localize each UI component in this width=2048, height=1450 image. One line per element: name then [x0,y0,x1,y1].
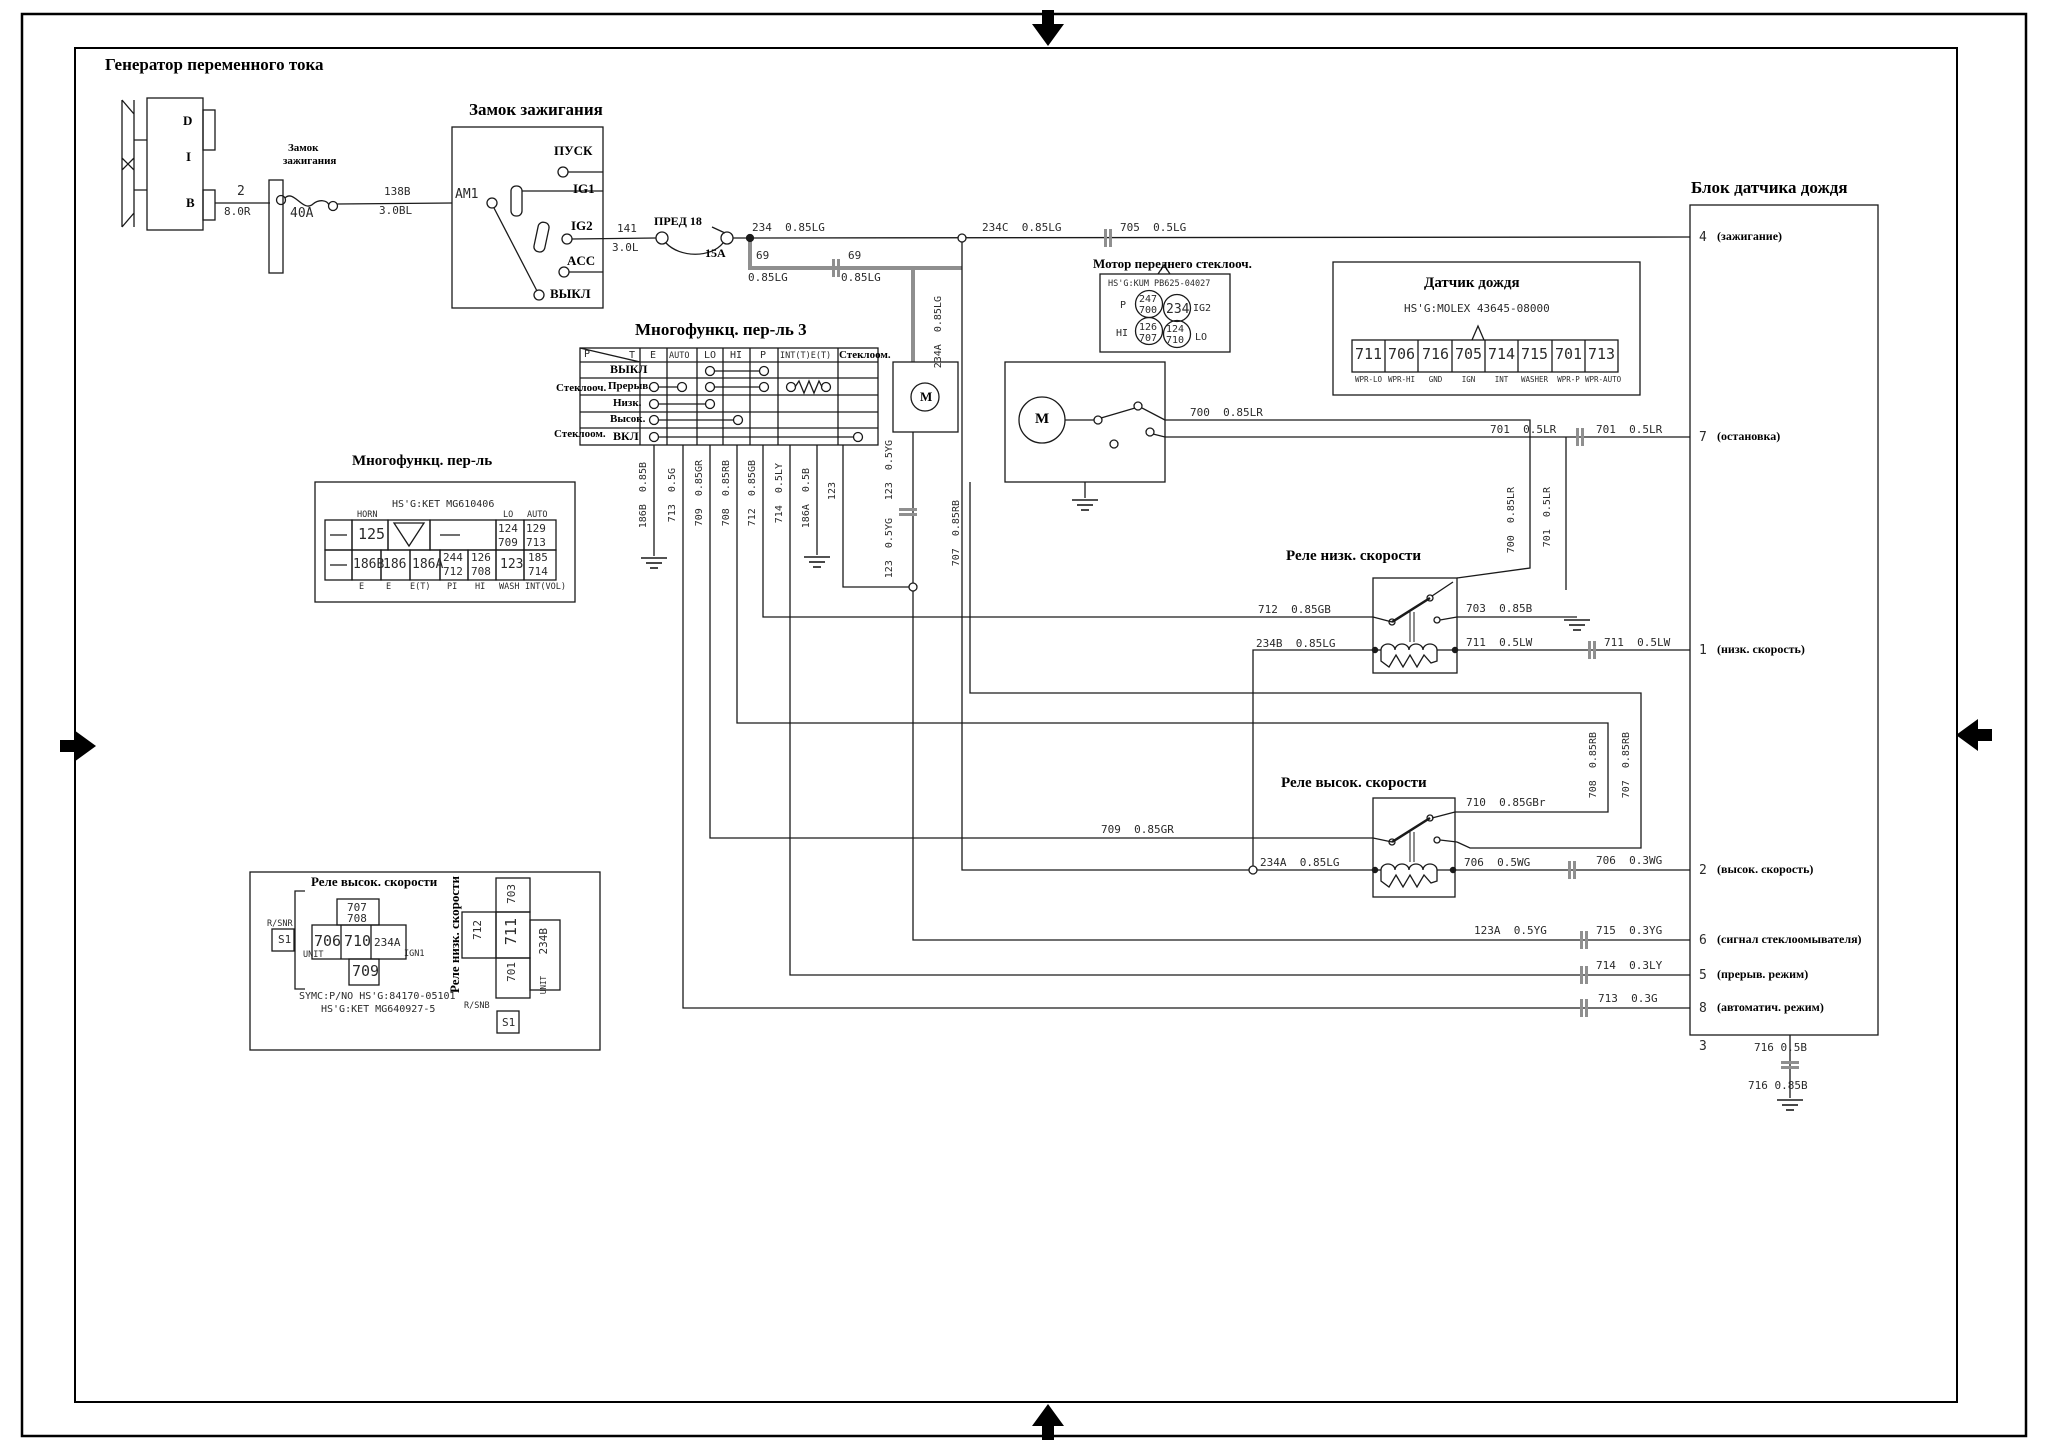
motorconn-247: 247 [1139,295,1157,305]
connlow-701: 701 [506,962,517,982]
relay-high-box [1372,798,1457,897]
block-pin-label: (прерыв. режим) [1717,968,1808,980]
mfs-horn: HORN [357,511,377,520]
block-pin-label: (автоматич. режим) [1717,1001,1824,1013]
rain-hsg: HS'G:MOLEX 43645-08000 [1404,303,1550,314]
ground-symbols [641,500,1803,1110]
connlow-unit: UNIT [540,976,548,994]
mfs3-hdr-lo: LO [704,351,716,361]
rw-711a: 711 0.5LW [1466,637,1532,648]
rain-pin-label: WPR-LO [1352,376,1385,384]
block-pin-num: 8 [1699,1002,1707,1015]
connlow-rsnb: R/SNB [464,1002,490,1011]
vw-123y1: 123 0.5YG [885,440,895,500]
mfs3-hdr-t: T [629,351,635,361]
wire-234c-label: 234C 0.85LG [982,222,1061,233]
mfs-186a: 186A [412,558,443,571]
mfs-auto: AUTO [527,511,547,520]
gen-pin-d: D [183,114,192,127]
ignition-acc: ACC [567,254,595,267]
connlow-712: 712 [472,920,483,940]
motorconn-124: 124 [1166,325,1184,335]
arrow-right-icon [1956,719,1992,751]
washer-motor-m: M [920,390,932,403]
fuse-15a-label: 15A [705,247,726,259]
rain-pin: 705 [1452,347,1485,362]
block-pin-num: 4 [1699,231,1707,244]
fusible-40a: 40A [290,207,313,220]
vw-123y2: 123 0.5YG [885,518,895,578]
wire-138b-gauge: 3.0BL [379,205,412,216]
block-pin-num: 6 [1699,934,1707,947]
rain-title: Датчик дождя [1424,276,1520,291]
rain-pin: 716 [1419,347,1452,362]
mfs3-row-low: Низк. [613,398,641,409]
vw-713: 713 0.5G [668,468,678,522]
connhigh-unit: UNIT [303,951,323,960]
rw-701a: 701 0.5LR [1490,424,1556,435]
mfs-e5: HI [475,583,485,592]
mfs3-hdr-om: Стеклоом. [839,350,891,361]
rw-712: 712 0.85GB [1258,604,1331,615]
mfs-186: 186 [383,558,406,571]
motorconn-ig2: IG2 [1193,304,1211,314]
ignition-ig1: IG1 [573,182,595,195]
rw-710: 710 0.85GBr [1466,797,1545,808]
mfs-title: Многофункц. пер-ль [352,454,492,469]
wire-141-gauge: 3.0L [612,242,639,253]
rain-block-box [1690,205,1878,1035]
motorconn-p: P [1120,301,1126,311]
rain-pin: 711 [1352,347,1385,362]
mfs3-row-off: ВЫКЛ [610,363,647,375]
wire-234-main [733,237,1690,238]
relay-connectors-box [250,872,600,1050]
connlow-234b: 234B [538,928,549,955]
fusible-link-40a [269,180,338,273]
mfs-708: 708 [471,566,491,577]
connhigh-710: 710 [344,934,371,949]
mfs-lo: LO [503,511,513,520]
mfs-126: 126 [471,552,491,563]
arrow-left-icon [60,730,96,762]
rain-pin: 714 [1485,347,1518,362]
rw-703: 703 0.85B [1466,603,1532,614]
vw-709: 709 0.85GR [695,460,705,526]
mfs-124: 124 [498,523,518,534]
rw-701b: 701 0.5LR [1596,424,1662,435]
connhigh-sym2: HS'G:KET MG640927-5 [321,1005,435,1015]
gen-pin-i: I [186,150,191,163]
mfs3-row-int: Прерыв. [608,381,651,392]
mfs-123: 123 [500,558,523,571]
block-pin-num: 2 [1699,864,1707,877]
block-title: Блок датчика дождя [1691,179,1848,196]
relay-low-box [1372,578,1457,673]
arrow-top-icon [1032,10,1064,46]
motorconn-707: 707 [1139,334,1157,344]
generator-title: Генератор переменного тока [105,56,324,73]
wire-69-gauge: 0.85LG [748,272,788,283]
block-pin-label: (остановка) [1717,430,1780,442]
connhigh-sym1: SYMC:P/NO HS'G:84170-05101 [299,992,456,1002]
wire-716a-label: 716 0.5B [1754,1042,1807,1053]
connlow-711: 711 [504,918,519,945]
wire-234a-vlabel: 234A 0.85LG [934,296,944,368]
connhigh-ign1: IGN1 [404,950,424,959]
rain-pin: 715 [1518,347,1551,362]
block-pin-label: (низк. скорость) [1717,643,1805,655]
connhigh-708: 708 [347,913,367,924]
ignition-title: Замок зажигания [469,101,603,118]
block-pin-num: 1 [1699,644,1707,657]
mfs-e3: E(T) [410,583,430,592]
wire-712 [763,445,1373,617]
rain-pin: 701 [1552,347,1585,362]
rain-pin-label: INT [1485,376,1518,384]
wire-138b-label: 138B [384,186,411,197]
relay-low-title: Реле низк. скорости [1286,549,1421,564]
rain-pin-label: WPR-HI [1385,376,1418,384]
connhigh-s1: S1 [278,934,291,945]
wire-234-label: 234 0.85LG [752,222,825,233]
ignition-off: ВЫКЛ [550,287,591,300]
wire-708-710 [737,445,1608,812]
mfs3-hdr-e: E [650,351,656,361]
vw-708b: 708 0.85RB [1589,732,1599,798]
mfs-e2: E [386,583,391,592]
vw-123: 123 [828,482,838,500]
rain-pin-label: IGN [1452,376,1485,384]
wire-234b [1253,650,1373,870]
rw-706a: 706 0.5WG [1464,857,1530,868]
gen-pin-b: B [186,196,195,209]
fusible-label-2: зажигания [283,156,336,167]
connlow-703: 703 [506,884,517,904]
rw-709: 709 0.85GR [1101,824,1174,835]
vw-707b: 707 0.85RB [1622,732,1632,798]
vw-708: 708 0.85RB [722,460,732,526]
mfs-186b: 186B [353,558,384,571]
wire-69b-gauge: 0.85LG [841,272,881,283]
mfs3-grp-wiper: Стеклооч. [556,383,606,394]
fusible-label-1: Замок [288,143,319,154]
motorconn-126: 126 [1139,323,1157,333]
rain-pin: 713 [1585,347,1618,362]
block-pin-label: (высок. скорость) [1717,863,1813,875]
rw-706b: 706 0.3WG [1596,855,1662,866]
gen-wire-gauge: 8.0R [224,206,251,217]
rain-pin: 706 [1385,347,1418,362]
mfs-713: 713 [526,537,546,548]
wire-69-label: 69 [756,250,769,261]
mfs-709: 709 [498,537,518,548]
rw-234a: 234A 0.85LG [1260,857,1339,868]
connhigh-rsnr: R/SNR [267,920,293,929]
mfs3-hdr-p2: P [760,351,766,361]
block-pin-num: 5 [1699,969,1707,982]
vw-712: 712 0.85GB [748,460,758,526]
mfs-244: 244 [443,552,463,563]
wiper-motor-box [1005,362,1165,498]
block-pin-label: (зажигание) [1717,230,1782,242]
motorconn-hsg: HS'G:KUM PB625-04027 [1108,280,1210,289]
mfs-e1: E [359,583,364,592]
vw-701: 701 0.5LR [1543,487,1553,547]
connlow-s1: S1 [502,1017,515,1028]
mfs-125: 125 [358,527,385,542]
rw-711b: 711 0.5LW [1604,637,1670,648]
rain-pin-label: WPR-P [1552,376,1585,384]
mfs-712: 712 [443,566,463,577]
ignition-ig2: IG2 [571,219,593,232]
wiper-motor-m: M [1035,412,1049,427]
ignition-pusk: ПУСК [554,144,592,157]
block-pin-label: (сигнал стеклоомывателя) [1717,933,1862,945]
connhigh-709: 709 [352,964,379,979]
wire-705-label: 705 0.5LG [1120,222,1186,233]
rw-714: 714 0.3LY [1596,960,1662,971]
motorconn-lo: LO [1195,333,1207,343]
vw-700: 700 0.85LR [1507,487,1517,553]
wiring-diagram-page: Генератор переменного тока D I B 2 8.0R … [0,0,2048,1450]
rw-715: 715 0.3YG [1596,925,1662,936]
connlow-title: Реле низк. скорости [448,876,461,993]
wire-716b-label: 716 0.85B [1748,1080,1808,1091]
mfs3-row-on: ВКЛ [613,430,639,442]
rw-700: 700 0.85LR [1190,407,1263,418]
generator-box [122,98,215,230]
mfs3-grp-washer: Стеклоом. [554,429,606,440]
vw-186a: 186A 0.5B [802,468,812,528]
wire-707 [970,482,1641,848]
motor-title: Мотор переднего стеклооч. [1093,257,1252,270]
motorconn-700: 700 [1139,306,1157,316]
motorconn-hi: HI [1116,329,1128,339]
block-pin3: 3 [1699,1040,1707,1053]
mfs3-title: Многофункц. пер-ль 3 [635,321,807,338]
wire-141 [572,238,656,239]
rain-pin-label: WASHER [1518,376,1551,384]
mfs3-hdr-hi: HI [730,351,742,361]
rain-pin-label: GND [1419,376,1452,384]
vw-707a: 707 0.85RB [952,500,962,566]
mfs3-hdr-p: P [584,350,590,360]
connhigh-234a: 234A [374,937,401,948]
motorconn-710: 710 [1166,336,1184,346]
arrow-bottom-icon [1032,1404,1064,1440]
rw-713: 713 0.3G [1598,993,1658,1004]
connhigh-706: 706 [314,934,341,949]
wire-714-pin5 [790,445,1690,975]
mfs-e4: PI [447,583,457,592]
mfs-hsg: HS'G:KET MG610406 [392,500,494,510]
mfs3-hdr-int: INT(T)E(T) [780,352,831,361]
wire-69b-label: 69 [848,250,861,261]
ignition-am1: AM1 [455,188,478,201]
fuse-pred18-label: ПРЕД 18 [654,215,702,227]
connhigh-title: Реле высок. скорости [311,875,437,888]
vw-714: 714 0.5LY [775,463,785,523]
rw-123a: 123A 0.5YG [1474,925,1547,936]
mfs-714: 714 [528,566,548,577]
mfs-185: 185 [528,552,548,563]
motorconn-234: 234 [1166,303,1189,316]
vw-186b: 186B 0.85B [639,462,649,528]
mfs-129: 129 [526,523,546,534]
mfs3-hdr-auto: AUTO [669,352,689,361]
gen-wire-num: 2 [237,185,245,198]
mfs-e7: INT(VOL) [525,583,566,592]
rw-234b: 234B 0.85LG [1256,638,1335,649]
block-pin-num: 7 [1699,431,1707,444]
mfs3-row-high: Высок. [610,414,645,425]
wire-141-label: 141 [617,223,637,234]
mfs-e6: WASH [499,583,519,592]
relay-high-title: Реле высок. скорости [1281,776,1427,791]
rain-pin-label: WPR-AUTO [1585,376,1621,384]
